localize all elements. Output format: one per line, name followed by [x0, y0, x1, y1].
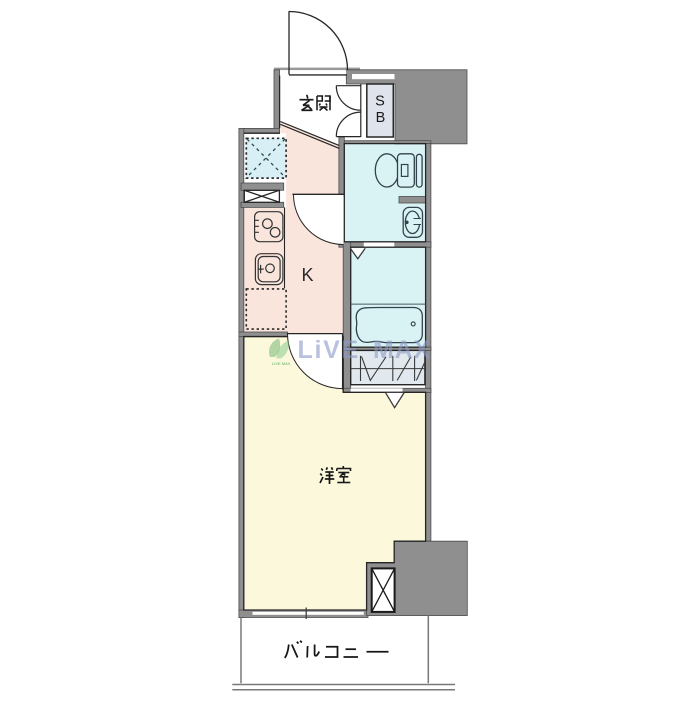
svg-text:LiVE: LiVE: [298, 336, 360, 364]
svg-text:B: B: [376, 110, 386, 126]
svg-text:S: S: [375, 94, 385, 110]
svg-text:LIVE MAX: LIVE MAX: [272, 361, 291, 366]
svg-text:K: K: [302, 265, 314, 285]
svg-text:MAX: MAX: [373, 336, 431, 364]
